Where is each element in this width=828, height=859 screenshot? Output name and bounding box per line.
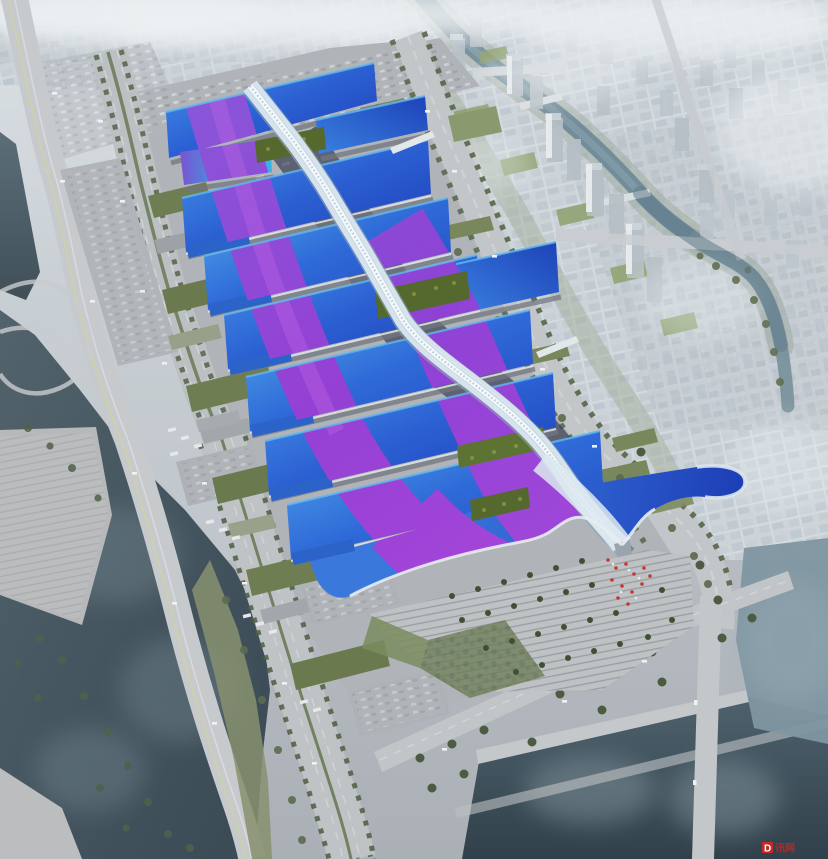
svg-text:D: D bbox=[764, 844, 771, 855]
svg-text:讯网: 讯网 bbox=[775, 842, 795, 855]
